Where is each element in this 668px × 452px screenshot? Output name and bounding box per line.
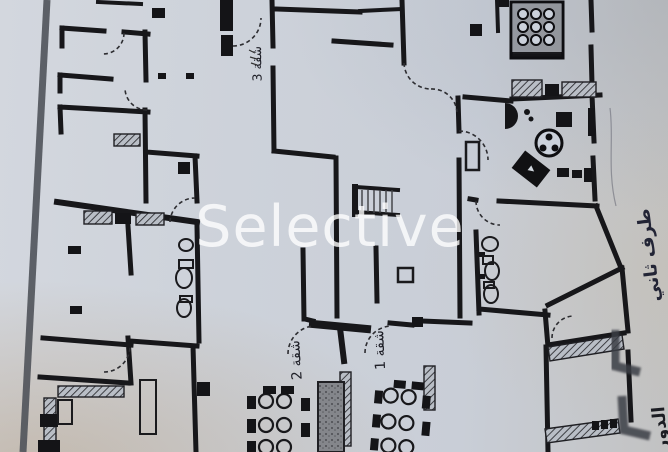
dining-set-left xyxy=(247,386,310,452)
floor-plan-photo: شقة 3 شقة 2 شقة 1 طرف ثاني الدور الثاني … xyxy=(0,0,668,452)
watermark-text: Selective xyxy=(195,194,464,260)
boundary-pencil-line xyxy=(610,108,616,206)
apartment-1-label: شقة 1 xyxy=(371,330,389,370)
floor-title-label: الدور الثاني xyxy=(649,406,668,452)
bed-coil xyxy=(511,2,563,58)
round-table xyxy=(536,130,562,156)
apartment-2-label: شقة 2 xyxy=(287,340,306,381)
paper-edge-line xyxy=(23,0,47,452)
side-note-label: طرف ثاني xyxy=(633,207,665,303)
apartment-3-label: شقة 3 xyxy=(249,46,265,82)
